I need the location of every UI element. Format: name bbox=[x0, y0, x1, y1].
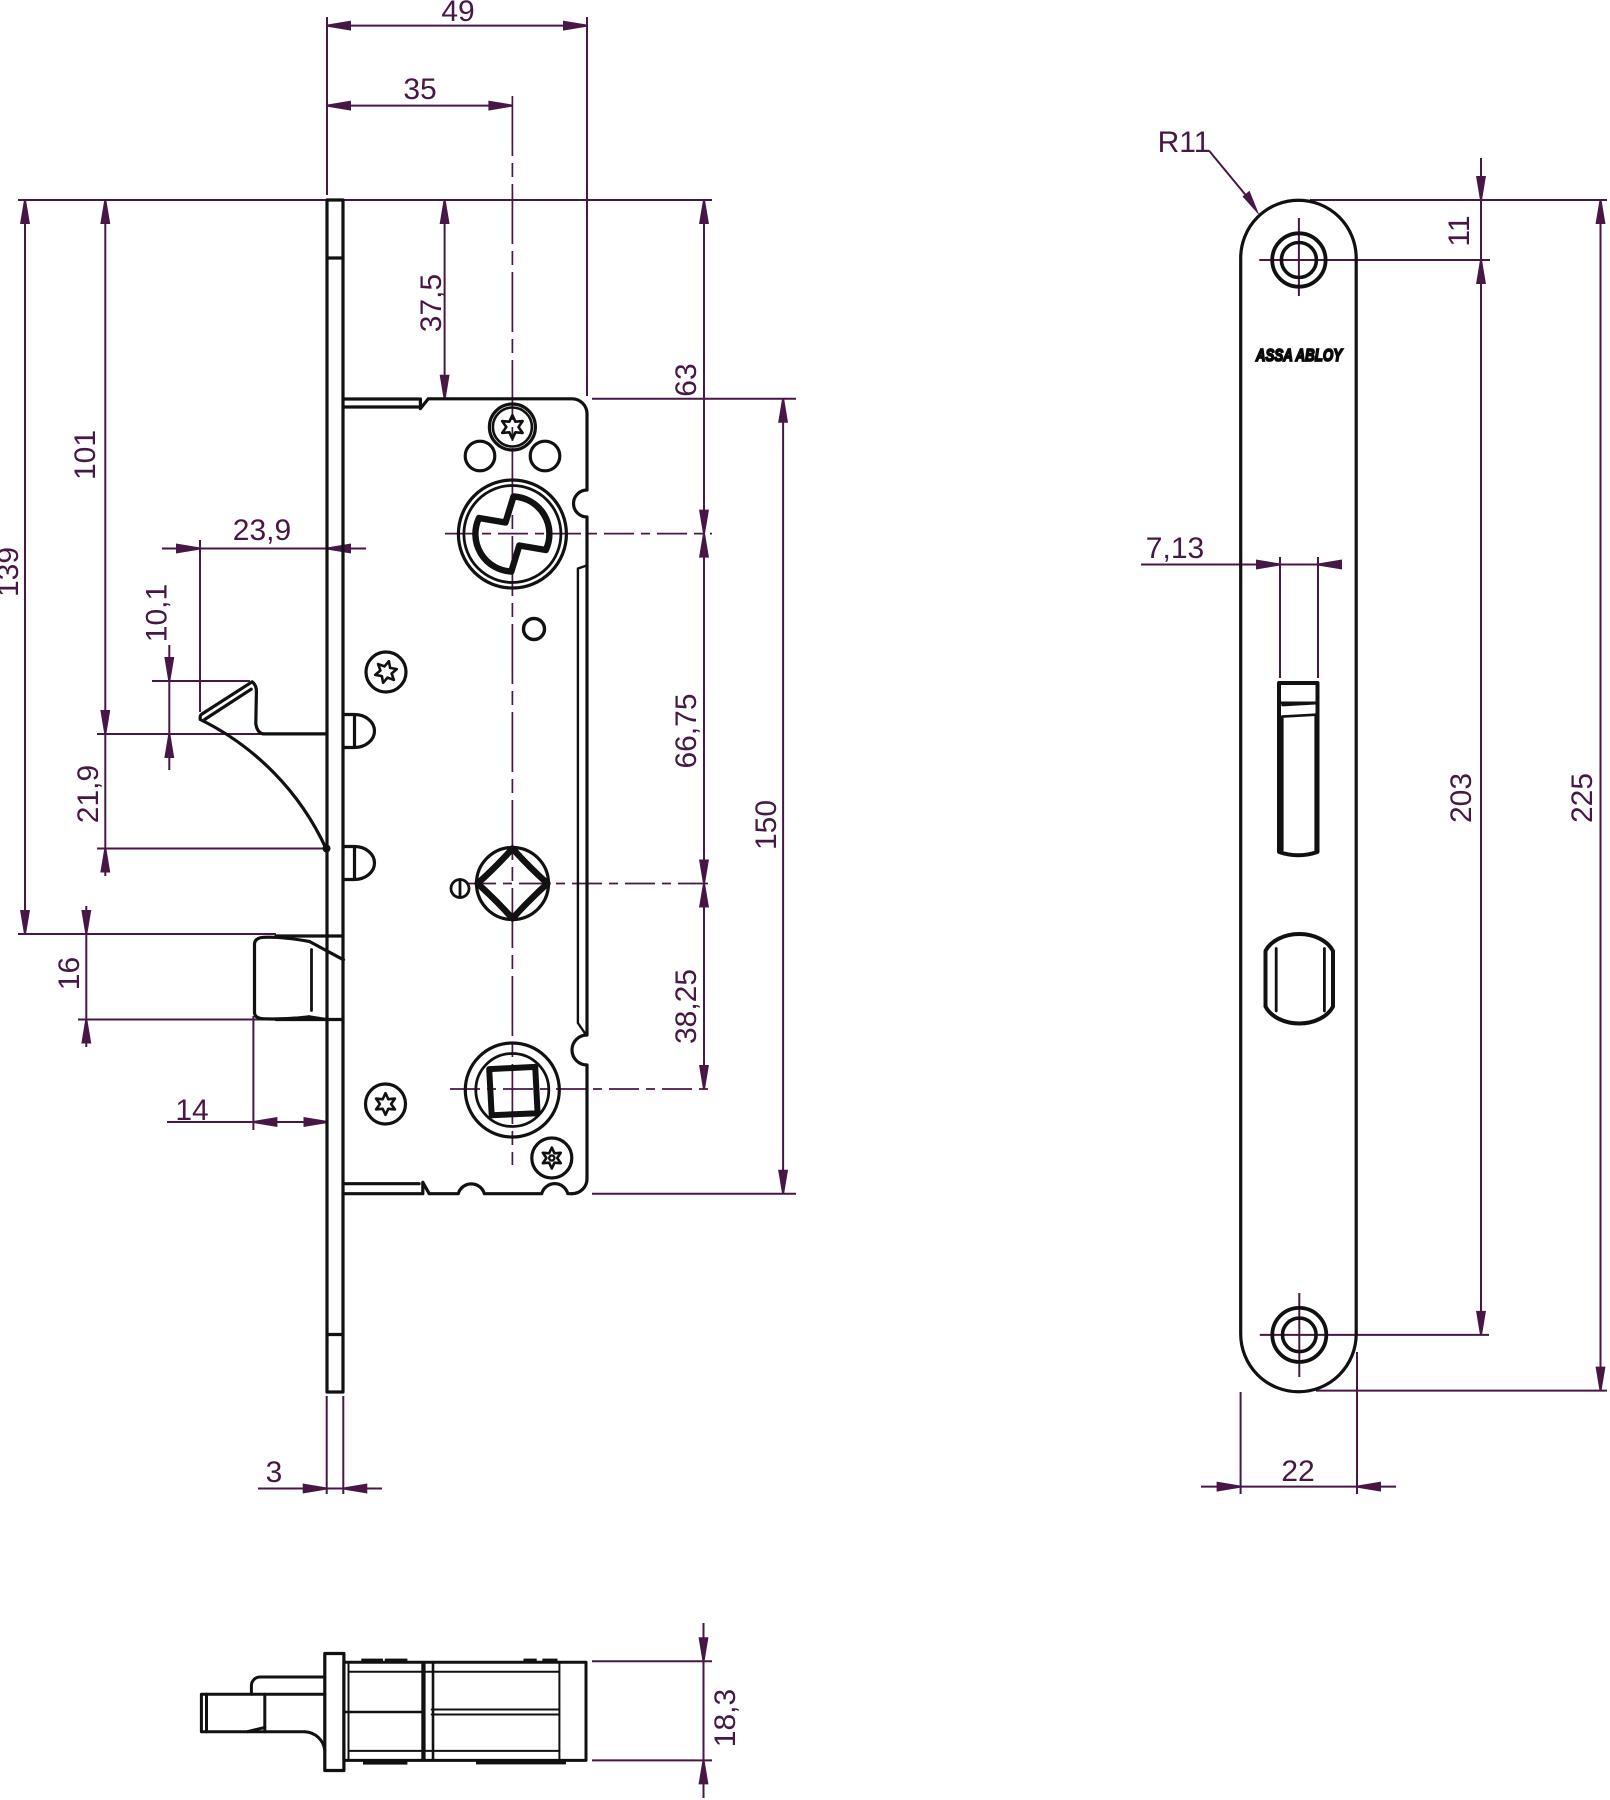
svg-text:203: 203 bbox=[1445, 773, 1478, 823]
svg-text:11: 11 bbox=[1443, 215, 1476, 246]
svg-text:150: 150 bbox=[750, 800, 783, 850]
svg-text:10,1: 10,1 bbox=[141, 584, 174, 642]
svg-text:7,13: 7,13 bbox=[1146, 532, 1204, 565]
svg-text:R11: R11 bbox=[1158, 126, 1211, 159]
svg-text:37,5: 37,5 bbox=[415, 274, 448, 332]
svg-text:22: 22 bbox=[1281, 1455, 1314, 1488]
svg-text:49: 49 bbox=[441, 0, 474, 28]
svg-text:18,3: 18,3 bbox=[709, 1689, 742, 1747]
svg-text:21,9: 21,9 bbox=[72, 765, 105, 823]
svg-text:101: 101 bbox=[69, 430, 102, 480]
svg-text:ASSA ABLOY: ASSA ABLOY bbox=[1255, 346, 1343, 365]
svg-text:38,25: 38,25 bbox=[670, 969, 703, 1044]
svg-text:66,75: 66,75 bbox=[670, 693, 703, 768]
svg-text:35: 35 bbox=[403, 73, 436, 106]
svg-text:3: 3 bbox=[266, 1456, 283, 1489]
svg-text:23,9: 23,9 bbox=[233, 514, 291, 547]
svg-text:16: 16 bbox=[53, 957, 86, 990]
svg-text:63: 63 bbox=[670, 363, 703, 396]
svg-text:14: 14 bbox=[175, 1094, 208, 1127]
svg-text:225: 225 bbox=[1566, 773, 1599, 823]
svg-text:139: 139 bbox=[0, 547, 25, 597]
